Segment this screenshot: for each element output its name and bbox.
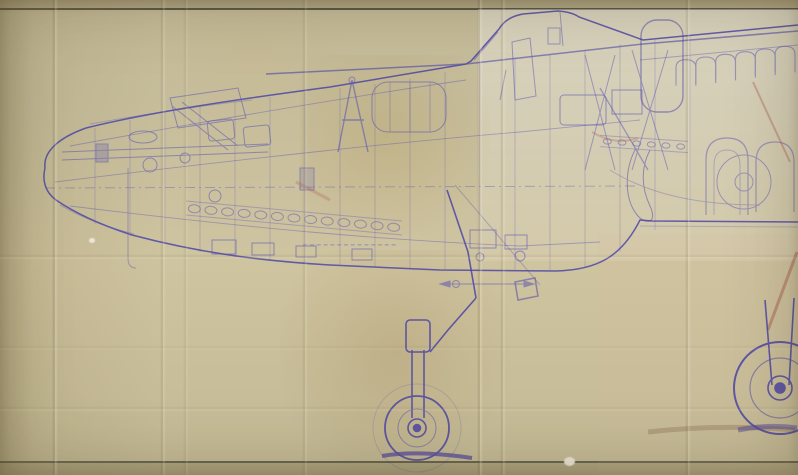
blueprint-photo	[0, 0, 798, 475]
photo-vignette	[0, 0, 798, 475]
